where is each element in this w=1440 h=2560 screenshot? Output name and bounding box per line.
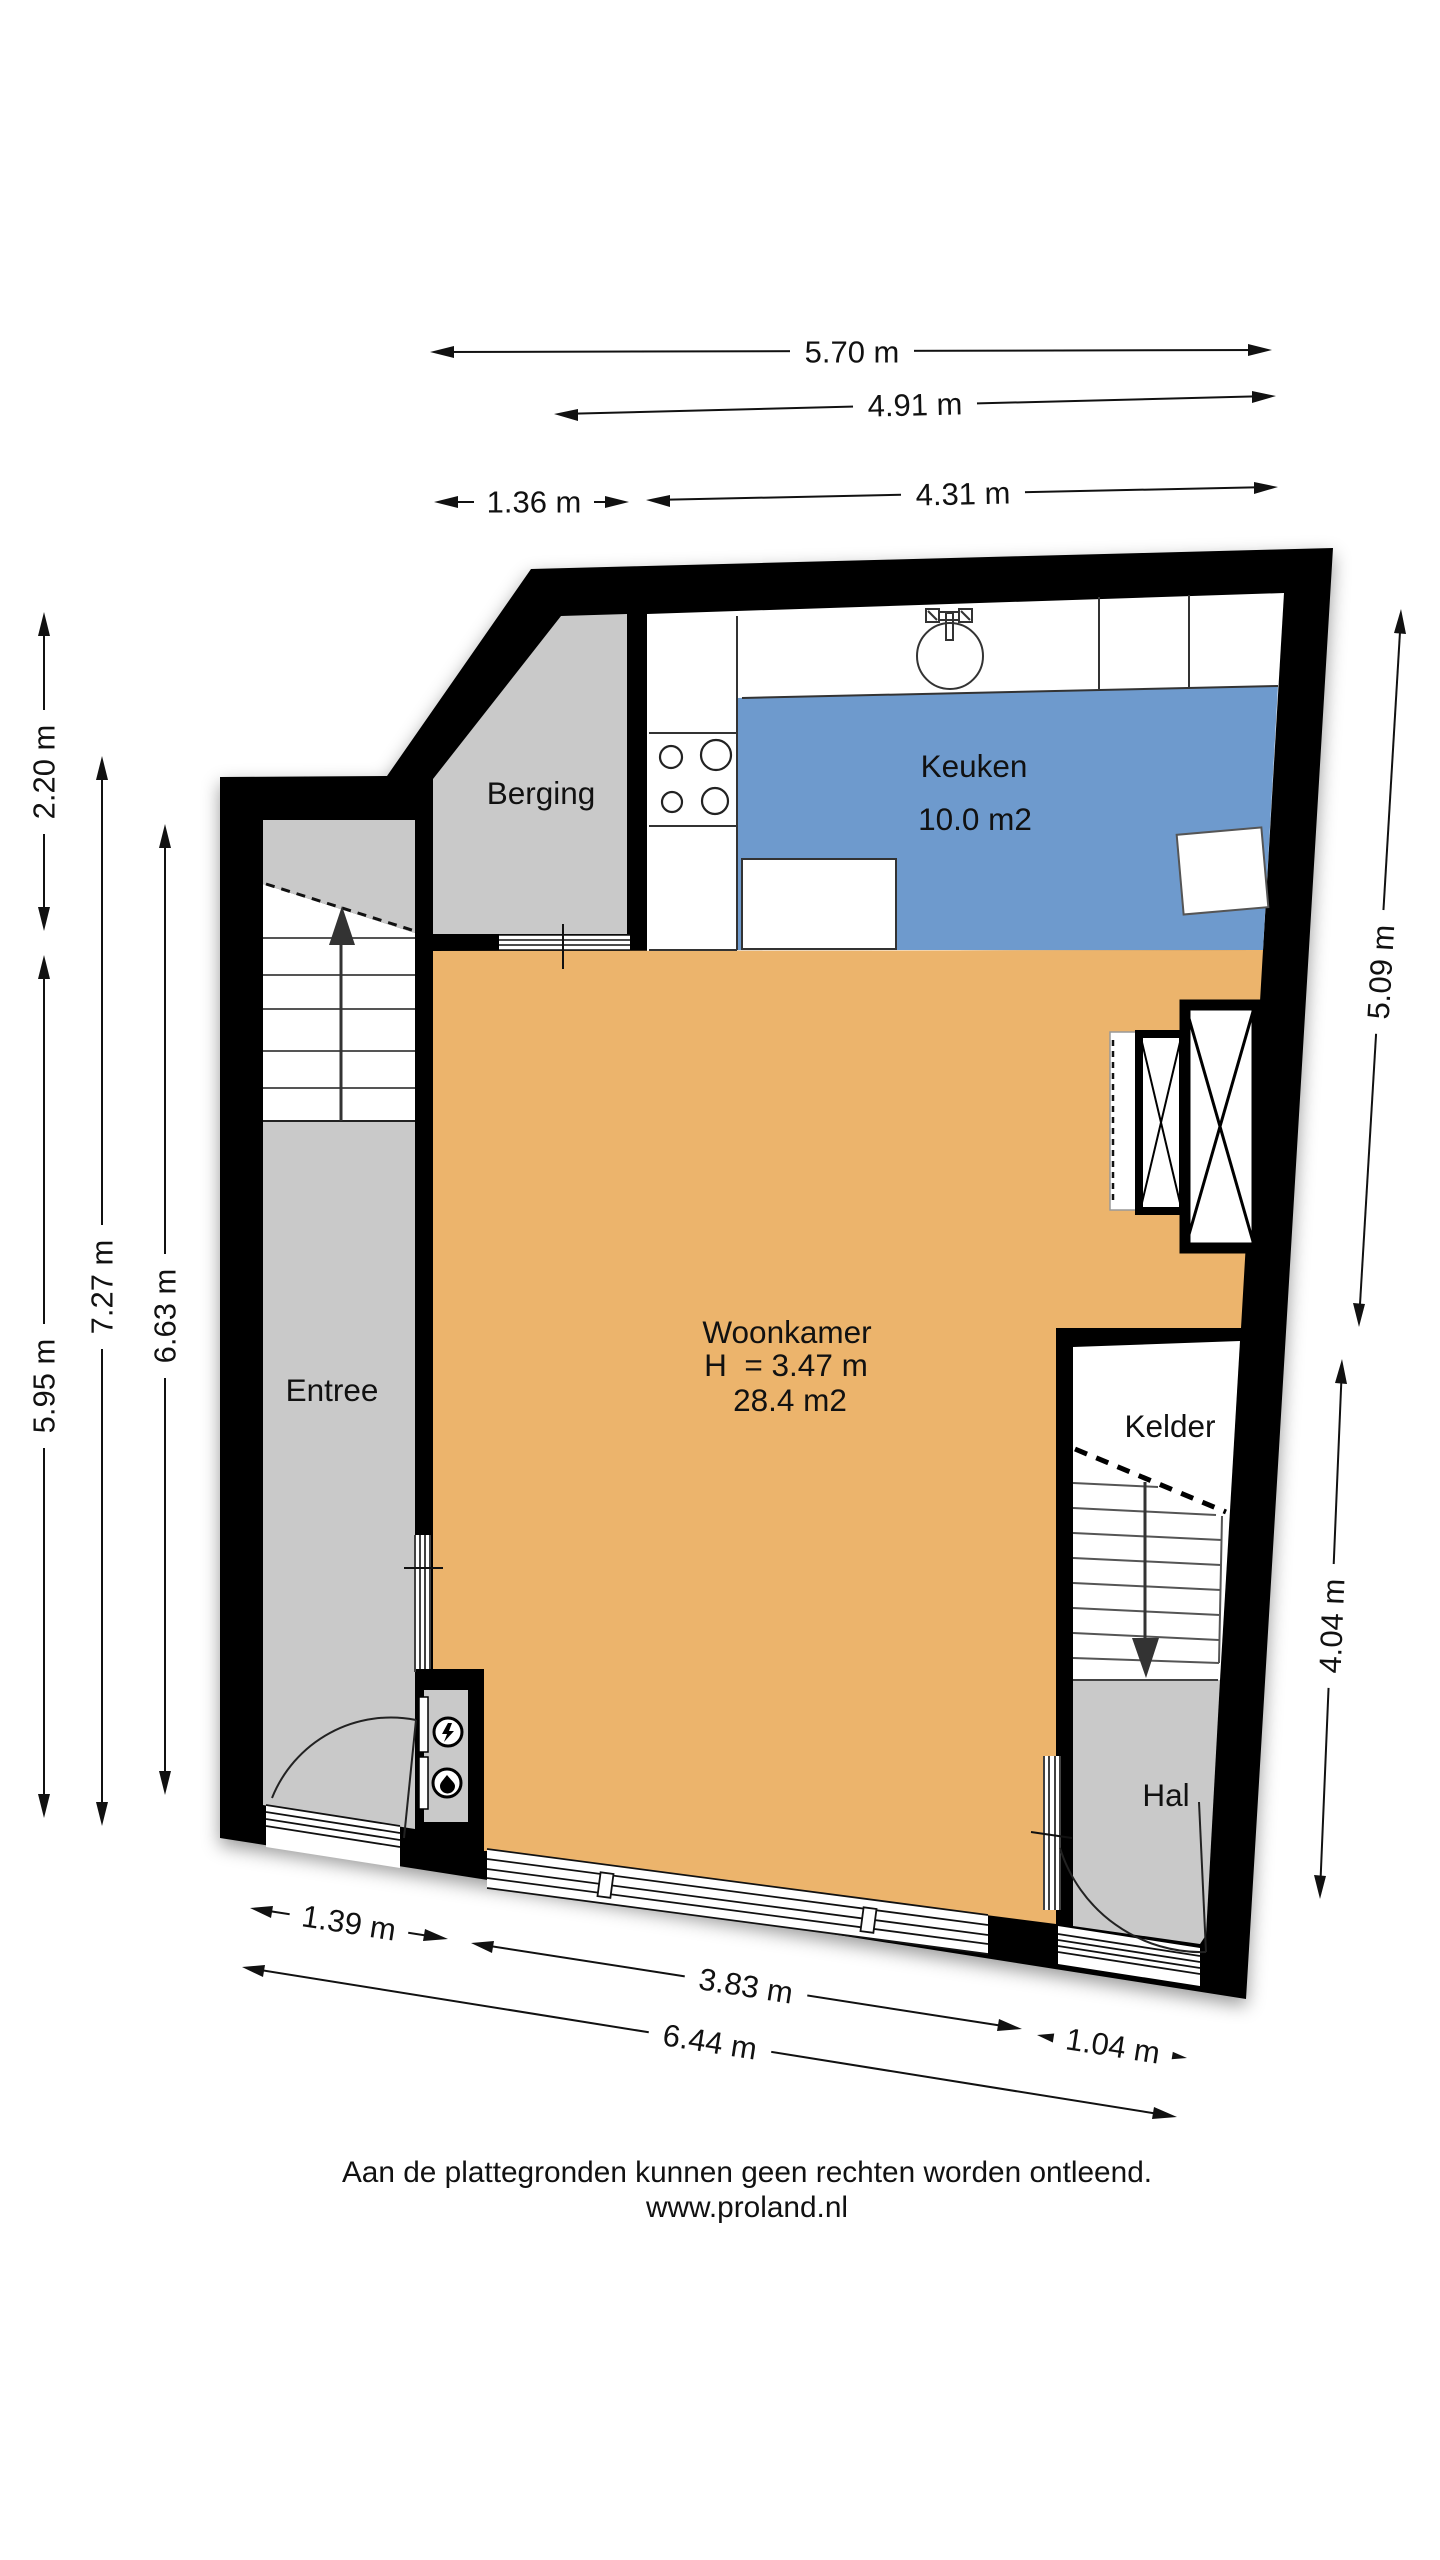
svg-text:1.36 m: 1.36 m [487,485,582,520]
svg-text:3.83 m: 3.83 m [696,1961,795,2010]
svg-text:Keuken: Keuken [921,748,1028,784]
svg-text:1.39 m: 1.39 m [299,1898,398,1947]
svg-text:10.0 m2: 10.0 m2 [918,801,1032,837]
svg-text:1.04 m: 1.04 m [1063,2021,1162,2070]
svg-text:6.63 m: 6.63 m [148,1269,183,1364]
svg-text:4.91 m: 4.91 m [867,386,963,423]
svg-text:2.20 m: 2.20 m [27,725,62,820]
svg-text:4.31 m: 4.31 m [915,476,1010,513]
svg-text:Woonkamer: Woonkamer [702,1314,871,1350]
svg-text:4.04 m: 4.04 m [1313,1578,1352,1674]
svg-text:5.09 m: 5.09 m [1361,924,1402,1021]
svg-text:Entree: Entree [286,1372,379,1408]
svg-text:www.proland.nl: www.proland.nl [645,2191,848,2224]
svg-text:H = 3.47 m: H = 3.47 m [704,1347,868,1383]
svg-text:Aan de plattegronden kunnen ge: Aan de plattegronden kunnen geen rechten… [342,2156,1152,2189]
svg-text:Kelder: Kelder [1124,1408,1215,1444]
svg-text:6.44 m: 6.44 m [660,2017,759,2066]
svg-text:5.70 m: 5.70 m [805,335,900,370]
svg-text:5.95 m: 5.95 m [27,1339,62,1434]
svg-text:Berging: Berging [487,775,596,811]
svg-text:7.27 m: 7.27 m [85,1240,120,1335]
svg-text:Hal: Hal [1142,1777,1189,1813]
svg-text:28.4 m2: 28.4 m2 [733,1382,847,1418]
